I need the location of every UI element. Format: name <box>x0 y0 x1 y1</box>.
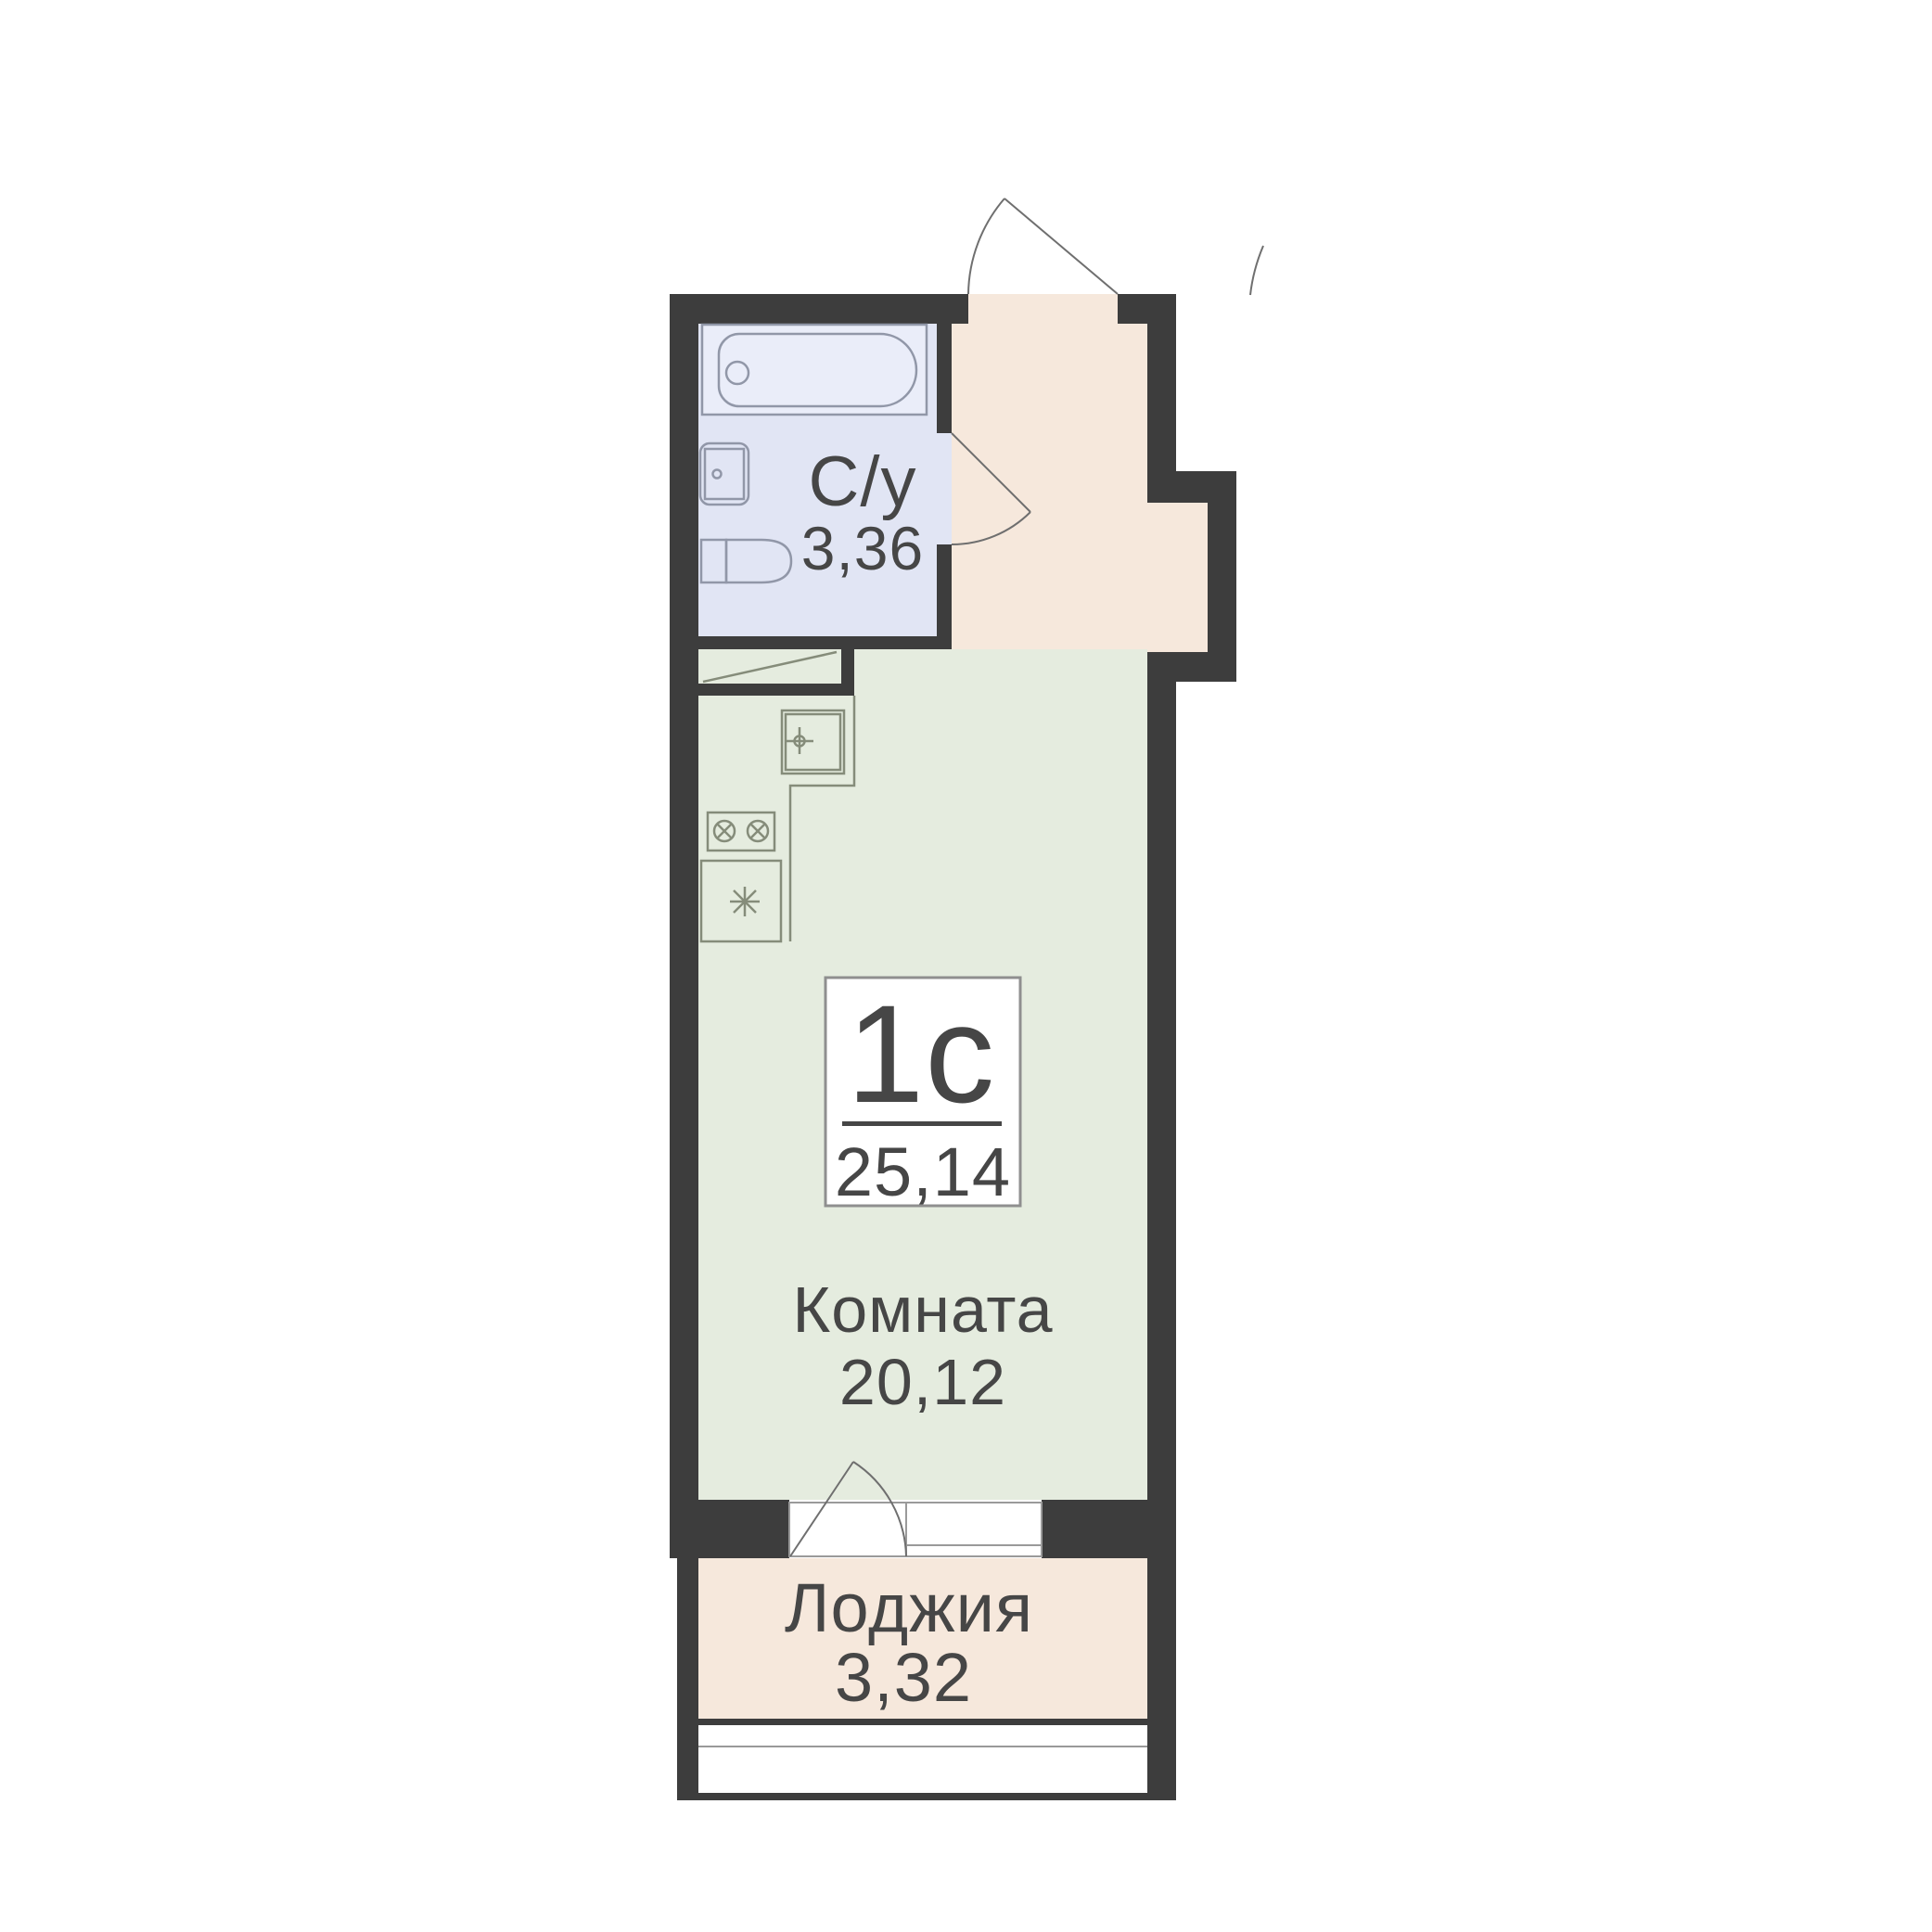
entrance-door-arc-icon <box>968 198 1118 294</box>
hall-floor <box>952 323 1147 649</box>
room-area: 20,12 <box>839 1346 1006 1418</box>
room-label: Комната <box>792 1273 1053 1346</box>
entrance-door-leaf <box>1004 198 1118 294</box>
wall-bay-top <box>1147 471 1236 503</box>
wall-top-left <box>670 294 968 324</box>
wall-bay-bottom <box>1147 652 1236 682</box>
bathtub-outer <box>702 325 927 415</box>
wall-bathroom-partition-lower <box>937 544 952 649</box>
wall-left <box>670 294 698 1558</box>
wall-loggia-right <box>1147 1556 1176 1799</box>
unit-type: 1с <box>847 976 995 1132</box>
hall-entrance-floor <box>968 294 1118 325</box>
loggia-outer-edge-line <box>677 1793 1176 1800</box>
loggia-floor-edge-line <box>698 1719 1147 1725</box>
wall-niche-bottom <box>698 684 854 696</box>
bathtub-icon <box>702 325 927 415</box>
floor-plan: С/у 3,36 1с 25,14 Комната 20,12 Лоджия 3… <box>0 0 1932 1932</box>
unit-label-divider <box>842 1121 1002 1126</box>
neighbor-door-arc-icon <box>1250 246 1263 295</box>
wall-room-bottom-left <box>670 1500 789 1558</box>
entrance-door-arc <box>968 198 1004 294</box>
wall-top-right-block <box>1118 294 1176 324</box>
window-icon <box>906 1503 1042 1556</box>
floor-plan-page: С/у 3,36 1с 25,14 Комната 20,12 Лоджия 3… <box>0 0 1932 1932</box>
bathroom-area: 3,36 <box>801 514 924 582</box>
bathroom-label: С/у <box>809 442 917 521</box>
unit-label-card: 1с 25,14 <box>825 976 1020 1210</box>
hall-bay-floor <box>1147 503 1208 652</box>
wall-bathroom-partition-upper <box>937 323 952 433</box>
loggia-area: 3,32 <box>835 1639 972 1716</box>
loggia-label: Лоджия <box>785 1569 1033 1646</box>
balcony-door-leaf-panel <box>789 1503 906 1556</box>
wall-loggia-left <box>677 1558 698 1799</box>
wall-niche-right <box>841 649 854 696</box>
unit-total-area: 25,14 <box>835 1133 1011 1210</box>
wall-bathroom-bottom <box>698 636 952 649</box>
wall-room-bottom-right <box>1042 1500 1176 1558</box>
wall-right-mid <box>1147 682 1176 1501</box>
loggia-glazing-icon <box>698 1725 1147 1793</box>
